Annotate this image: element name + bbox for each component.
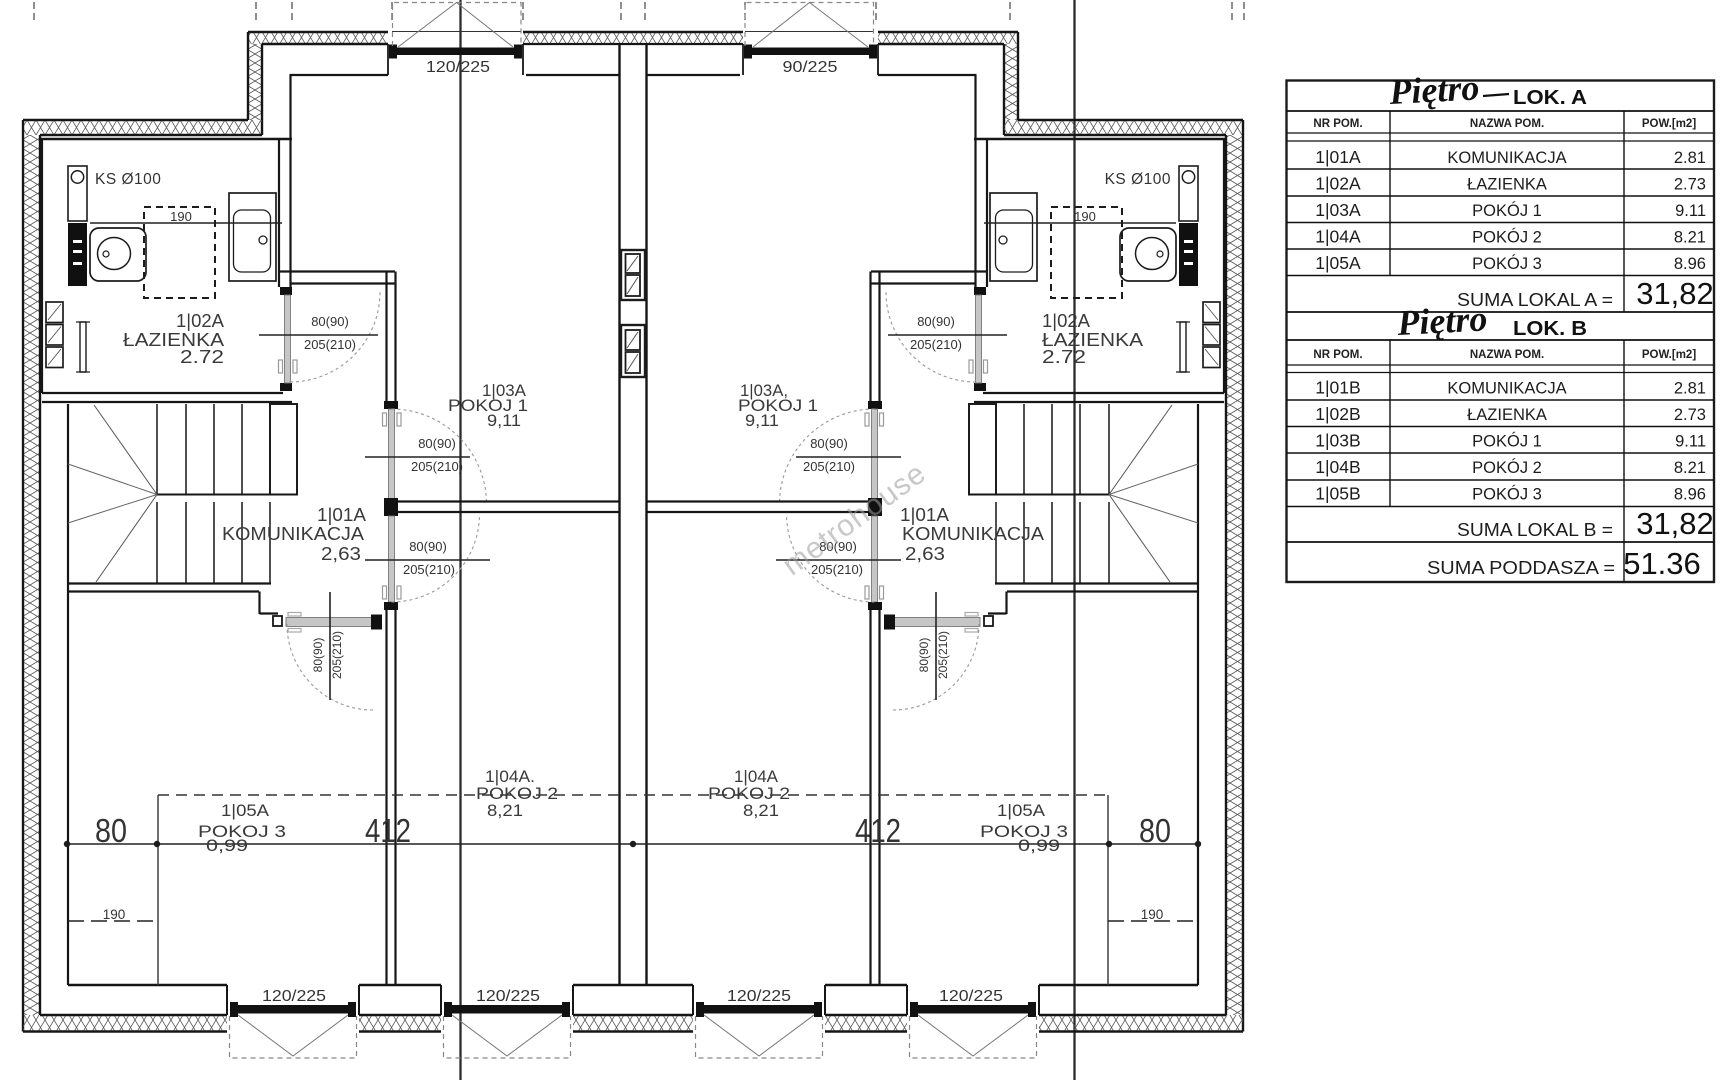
svg-text:205(210): 205(210) xyxy=(910,337,962,352)
svg-text:POW.[m2]: POW.[m2] xyxy=(1642,349,1696,361)
svg-text:KOMUNIKACJA: KOMUNIKACJA xyxy=(222,524,364,544)
svg-text:2.81: 2.81 xyxy=(1674,380,1706,398)
svg-text:120/225: 120/225 xyxy=(476,988,540,1005)
svg-text:2.81: 2.81 xyxy=(1674,149,1706,167)
svg-text:31,82: 31,82 xyxy=(1636,506,1714,541)
svg-text:1|01A: 1|01A xyxy=(900,505,949,525)
svg-text:NR POM.: NR POM. xyxy=(1313,349,1362,361)
svg-text:205(210): 205(210) xyxy=(403,562,455,577)
svg-text:31,82: 31,82 xyxy=(1636,276,1714,311)
svg-text:ŁAZIENKA: ŁAZIENKA xyxy=(1467,406,1547,424)
svg-text:205(210): 205(210) xyxy=(936,631,950,679)
svg-text:205(210): 205(210) xyxy=(411,459,463,474)
svg-text:1|05A: 1|05A xyxy=(221,801,270,820)
svg-text:LOK. A: LOK. A xyxy=(1513,87,1587,109)
svg-text:190: 190 xyxy=(1074,209,1096,224)
svg-text:190: 190 xyxy=(1141,907,1164,922)
svg-text:KOMUNIKACJA: KOMUNIKACJA xyxy=(1447,380,1566,398)
svg-text:120/225: 120/225 xyxy=(939,988,1003,1005)
svg-text:205(210): 205(210) xyxy=(304,337,356,352)
svg-text:0,99: 0,99 xyxy=(206,836,248,855)
svg-text:2.72: 2.72 xyxy=(1042,347,1086,367)
svg-text:8.21: 8.21 xyxy=(1674,459,1706,477)
svg-text:412: 412 xyxy=(855,812,901,849)
svg-text:2.73: 2.73 xyxy=(1674,176,1706,194)
svg-text:POKÓJ 3: POKÓJ 3 xyxy=(1472,254,1542,273)
svg-text:POKÓJ 2: POKÓJ 2 xyxy=(1472,458,1542,477)
svg-text:POW.[m2]: POW.[m2] xyxy=(1642,118,1696,130)
svg-text:KS Ø100: KS Ø100 xyxy=(1105,171,1171,188)
svg-text:190: 190 xyxy=(170,209,192,224)
svg-text:9.11: 9.11 xyxy=(1675,433,1706,451)
svg-text:80(90): 80(90) xyxy=(409,539,447,554)
svg-text:POKÓJ 1: POKÓJ 1 xyxy=(1472,201,1542,220)
svg-text:ŁAZIENKA: ŁAZIENKA xyxy=(1467,176,1547,194)
svg-text:80(90): 80(90) xyxy=(311,314,349,329)
svg-text:1|02A: 1|02A xyxy=(176,311,224,331)
svg-text:1|04A: 1|04A xyxy=(1315,227,1361,247)
svg-text:90/225: 90/225 xyxy=(783,59,838,76)
svg-text:205(210): 205(210) xyxy=(803,459,855,474)
svg-text:120/225: 120/225 xyxy=(727,988,791,1005)
svg-text:80(90): 80(90) xyxy=(917,314,955,329)
svg-text:1|01B: 1|01B xyxy=(1315,378,1360,398)
svg-text:KOMUNIKACJA: KOMUNIKACJA xyxy=(1447,149,1566,167)
svg-text:9,11: 9,11 xyxy=(745,411,779,430)
svg-text:8,21: 8,21 xyxy=(487,801,523,820)
svg-text:120/225: 120/225 xyxy=(426,59,490,76)
svg-text:1|02B: 1|02B xyxy=(1315,404,1360,424)
svg-text:Piętro: Piętro xyxy=(1395,298,1488,343)
svg-text:1|05A: 1|05A xyxy=(997,801,1046,820)
svg-text:412: 412 xyxy=(365,812,411,849)
svg-text:9,11: 9,11 xyxy=(487,411,521,430)
svg-text:KS Ø100: KS Ø100 xyxy=(95,171,161,188)
svg-text:NAZWA POM.: NAZWA POM. xyxy=(1470,118,1544,130)
svg-text:1|01A: 1|01A xyxy=(1315,147,1361,167)
svg-text:POKÓJ 3: POKÓJ 3 xyxy=(1472,485,1542,504)
svg-text:8.21: 8.21 xyxy=(1674,229,1706,247)
svg-text:8.96: 8.96 xyxy=(1674,255,1706,273)
svg-text:1|03A: 1|03A xyxy=(1315,200,1361,220)
svg-text:1|05B: 1|05B xyxy=(1315,484,1360,504)
svg-text:8,21: 8,21 xyxy=(743,801,779,820)
svg-text:205(210): 205(210) xyxy=(330,631,344,679)
svg-text:1|05A: 1|05A xyxy=(1315,253,1361,273)
svg-text:SUMA PODDASZA =: SUMA PODDASZA = xyxy=(1427,557,1615,578)
svg-text:POKÓJ 2: POKÓJ 2 xyxy=(1472,228,1542,247)
svg-text:1|02A: 1|02A xyxy=(1042,311,1090,331)
svg-text:POKÓJ 1: POKÓJ 1 xyxy=(1472,432,1542,451)
svg-text:SUMA LOKAL B =: SUMA LOKAL B = xyxy=(1457,519,1613,540)
svg-text:190: 190 xyxy=(103,907,126,922)
svg-text:2,63: 2,63 xyxy=(321,544,361,564)
svg-text:0,99: 0,99 xyxy=(1018,836,1060,855)
svg-text:1|02A: 1|02A xyxy=(1315,174,1361,194)
svg-text:80(90): 80(90) xyxy=(418,436,456,451)
svg-text:80(90): 80(90) xyxy=(810,436,848,451)
svg-text:NAZWA POM.: NAZWA POM. xyxy=(1470,349,1544,361)
svg-text:NR POM.: NR POM. xyxy=(1313,118,1362,130)
svg-text:Piętro: Piętro xyxy=(1387,67,1480,112)
svg-text:80(90): 80(90) xyxy=(917,638,931,673)
svg-text:2,63: 2,63 xyxy=(905,544,945,564)
svg-text:KOMUNIKACJA: KOMUNIKACJA xyxy=(902,524,1044,544)
svg-text:LOK. B: LOK. B xyxy=(1513,318,1587,340)
svg-text:2.73: 2.73 xyxy=(1674,406,1706,424)
svg-text:8.96: 8.96 xyxy=(1674,486,1706,504)
svg-text:80: 80 xyxy=(95,812,127,849)
svg-text:9.11: 9.11 xyxy=(1675,202,1706,220)
svg-text:1|03B: 1|03B xyxy=(1315,431,1360,451)
svg-text:80: 80 xyxy=(1139,812,1171,849)
svg-text:1|01A: 1|01A xyxy=(317,505,366,525)
svg-text:80(90): 80(90) xyxy=(311,638,325,673)
svg-text:51.36: 51.36 xyxy=(1623,546,1701,581)
svg-text:2.72: 2.72 xyxy=(180,347,224,367)
svg-text:120/225: 120/225 xyxy=(262,988,326,1005)
svg-text:1|04B: 1|04B xyxy=(1315,457,1360,477)
